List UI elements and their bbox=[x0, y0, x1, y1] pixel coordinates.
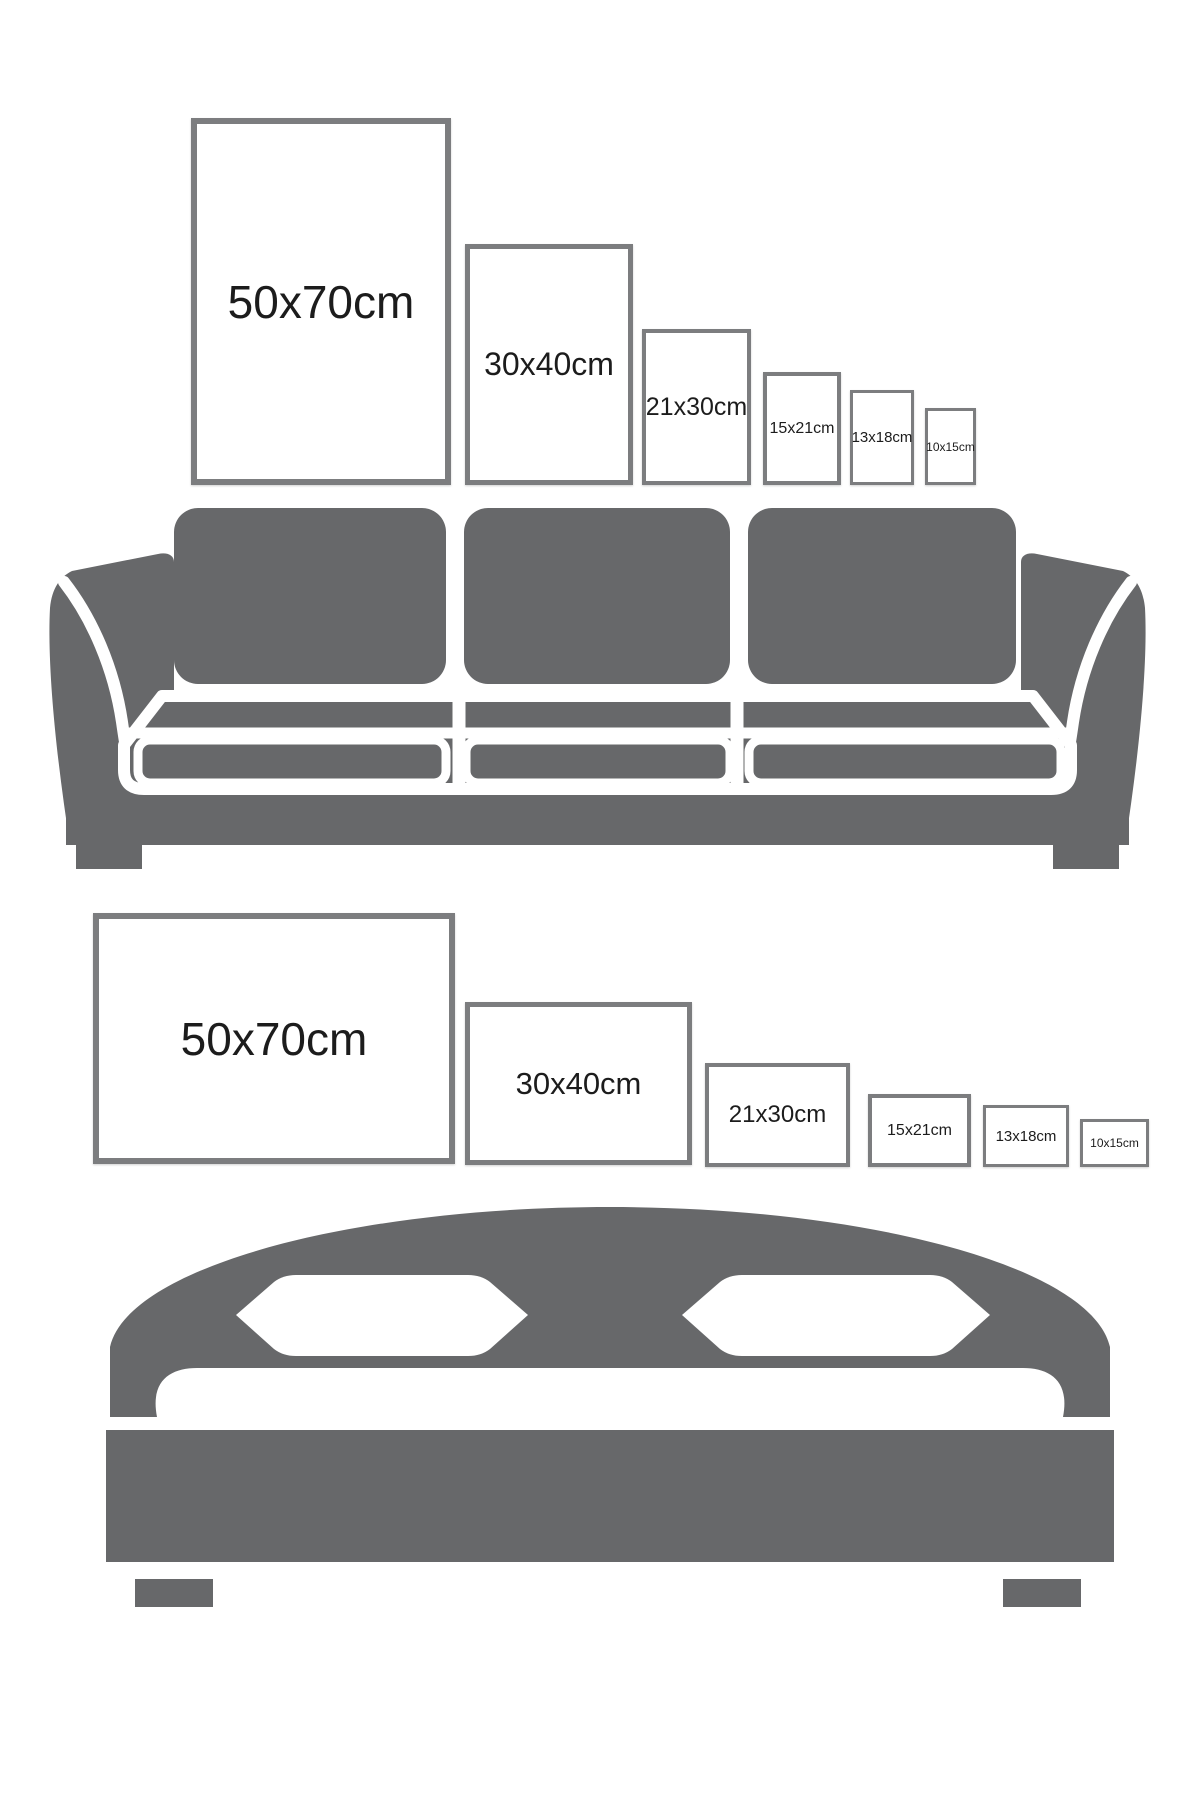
sofa-back-cushion bbox=[748, 508, 1016, 684]
frame-size-label: 30x40cm bbox=[484, 346, 614, 383]
frame-landscape-10x15: 10x15cm bbox=[1080, 1119, 1149, 1167]
sofa-illustration bbox=[40, 500, 1155, 872]
frame-portrait-50x70: 50x70cm bbox=[191, 118, 451, 485]
frame-portrait-10x15: 10x15cm bbox=[925, 408, 976, 485]
frame-size-label: 13x18cm bbox=[852, 429, 913, 446]
sofa-foot bbox=[76, 841, 142, 869]
frame-size-label: 15x21cm bbox=[887, 1122, 952, 1140]
bed-pillow bbox=[682, 1275, 990, 1356]
frame-landscape-30x40: 30x40cm bbox=[465, 1002, 692, 1165]
frame-portrait-13x18: 13x18cm bbox=[850, 390, 914, 485]
frame-size-label: 13x18cm bbox=[996, 1128, 1057, 1145]
frame-size-label: 15x21cm bbox=[770, 420, 835, 438]
sofa-foot bbox=[1053, 841, 1119, 869]
frame-size-label: 10x15cm bbox=[926, 440, 975, 454]
frame-size-label: 50x70cm bbox=[228, 275, 415, 329]
frame-landscape-15x21: 15x21cm bbox=[868, 1094, 971, 1167]
frame-size-label: 10x15cm bbox=[1090, 1136, 1139, 1150]
frame-size-label: 50x70cm bbox=[181, 1012, 368, 1066]
bed-foot bbox=[135, 1579, 213, 1607]
frame-size-label: 21x30cm bbox=[646, 393, 747, 422]
sofa-back-cushion bbox=[464, 508, 730, 684]
frame-landscape-13x18: 13x18cm bbox=[983, 1105, 1069, 1167]
bed-pillow bbox=[236, 1275, 528, 1356]
frame-portrait-30x40: 30x40cm bbox=[465, 244, 633, 485]
frame-size-label: 30x40cm bbox=[516, 1066, 642, 1102]
bed-base bbox=[106, 1430, 1114, 1562]
sofa-back-cushion bbox=[174, 508, 446, 684]
frame-landscape-21x30: 21x30cm bbox=[705, 1063, 850, 1167]
sofa-seat-cushion bbox=[749, 740, 1061, 783]
sofa-seat-cushion bbox=[466, 740, 730, 783]
frame-landscape-50x70: 50x70cm bbox=[93, 913, 455, 1164]
size-guide-infographic: 50x70cm 30x40cm 21x30cm 15x21cm 13x18cm … bbox=[0, 0, 1200, 1800]
frame-size-label: 21x30cm bbox=[729, 1101, 826, 1129]
frame-portrait-15x21: 15x21cm bbox=[763, 372, 841, 485]
bed-foot bbox=[1003, 1579, 1081, 1607]
frame-portrait-21x30: 21x30cm bbox=[642, 329, 751, 485]
bed-illustration bbox=[100, 1195, 1120, 1615]
sofa-seat-cushion bbox=[138, 740, 446, 783]
